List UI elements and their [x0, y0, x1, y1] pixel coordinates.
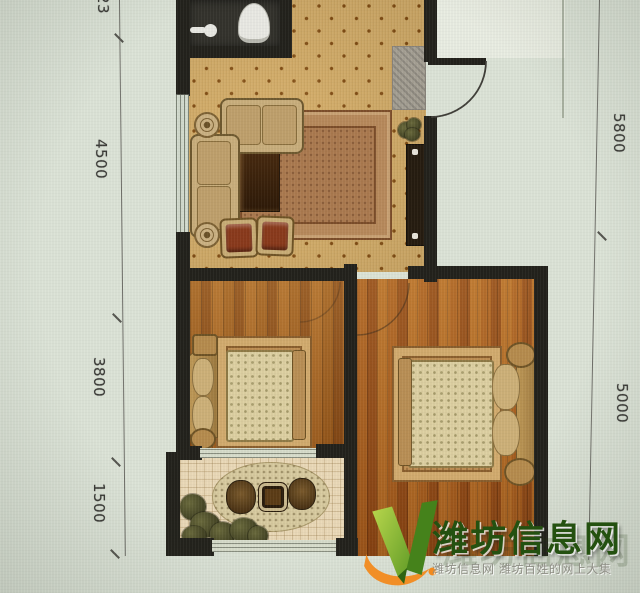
side-table-icon [194, 222, 220, 248]
watermark-brand: 潍坊信息网 [432, 510, 622, 562]
wall-balcony-corner [178, 538, 214, 556]
wall-right-mid [424, 116, 437, 282]
doormat-icon [392, 46, 426, 110]
pillow-icon [492, 410, 520, 456]
pillow-icon [492, 364, 520, 410]
dimension-tick [112, 313, 122, 323]
bed-right-footboard [398, 358, 412, 466]
dimension-line-right [588, 0, 600, 560]
sink-icon [204, 24, 217, 37]
bed-right-mattress [408, 360, 494, 468]
side-table-icon [194, 112, 220, 138]
dimension-tick [597, 231, 607, 241]
wall-balcony-right-stub [336, 538, 358, 556]
dim-label-top-left: 23 [94, 0, 112, 14]
watermark: 潍坊信息网 潍坊信息网 潍坊信息网 潍坊百姓的网上大集 [358, 494, 640, 593]
dimension-tick [111, 457, 121, 467]
balcony-window [212, 540, 338, 552]
dimension-line-left [119, 0, 126, 556]
nightstand-icon [506, 342, 536, 368]
exterior-corridor-patch [437, 0, 565, 58]
pillow-icon [192, 358, 214, 396]
dim-label-1500: 1500 [90, 483, 108, 523]
bathroom-wall-bottom [178, 46, 292, 58]
wall-left-bedroom [176, 268, 190, 460]
wall-bed1-bottom-right [316, 444, 356, 458]
nightstand-icon [192, 334, 218, 356]
bed-left-footboard [292, 350, 306, 440]
plant-icon [398, 118, 422, 142]
armchair-icon [219, 217, 258, 258]
dim-label-5000: 5000 [613, 383, 631, 423]
toilet-icon [238, 3, 270, 43]
entry-door-swing-icon [431, 61, 486, 117]
bathroom-wall-right [280, 0, 292, 58]
nightstand-icon [504, 458, 536, 486]
dim-label-5800: 5800 [610, 113, 628, 153]
patio-chair-icon [226, 480, 256, 514]
dim-label-3800: 3800 [90, 357, 108, 397]
floor-plan-photo: 23 4500 3800 1500 5800 5000 潍坊信息网 潍坊信息网 … [0, 0, 640, 593]
watermark-tagline: 潍坊信息网 潍坊百姓的网上大集 [432, 560, 611, 577]
bedroom-balcony-slider [200, 448, 318, 458]
wall-bedroom-right-top [408, 266, 548, 279]
dimension-tick [110, 549, 120, 559]
coffee-table-icon [238, 144, 280, 212]
patio-table-icon [258, 482, 288, 512]
exterior-wall-line [562, 0, 564, 118]
patio-chair-icon [288, 478, 316, 510]
entry-door-leaf [428, 58, 486, 65]
wall-middle-horizontal [176, 268, 346, 281]
armchair-icon [255, 215, 294, 256]
living-room-window [176, 94, 189, 236]
bed-left-mattress [226, 350, 294, 442]
wall-bedroom-divider [344, 264, 357, 556]
wall-right-top [424, 0, 437, 62]
dim-label-4500: 4500 [92, 139, 110, 179]
